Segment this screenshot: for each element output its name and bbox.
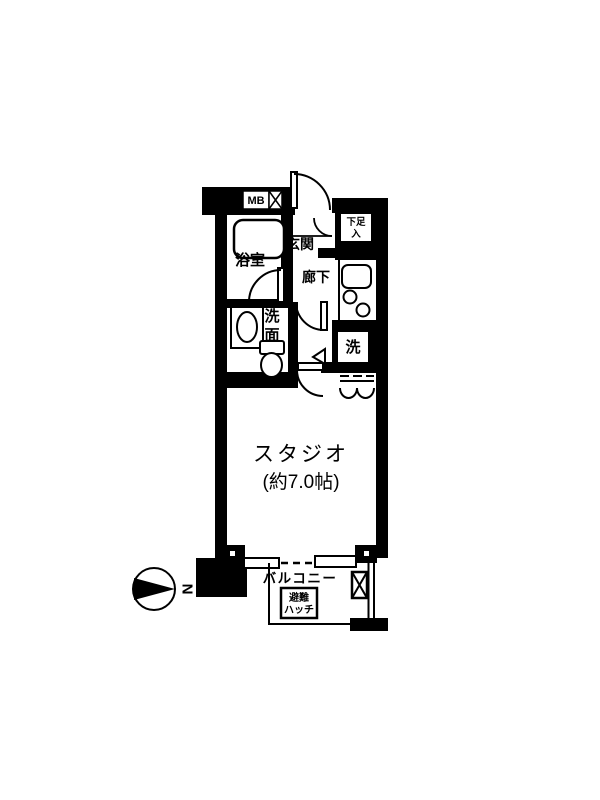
shoe-storage-label-1: 下足 <box>346 217 366 228</box>
balcony: バルコニー 避難 ハッチ <box>263 563 374 625</box>
escape-hatch-label-1: 避難 <box>288 591 309 604</box>
bath-label: 浴室 <box>235 251 265 269</box>
refrigerator-space <box>340 376 374 398</box>
wall-bottom-left-block <box>196 558 247 597</box>
pipe-space-label: P.S <box>346 248 365 260</box>
wall-laundry-bottom <box>321 362 376 373</box>
pillar-dot-left <box>230 551 235 556</box>
entrance-door-leaf <box>291 172 297 208</box>
studio-door-arc <box>297 370 323 396</box>
wall-laundry-left <box>332 332 338 362</box>
wall-balcony-bottom-right <box>350 618 388 631</box>
windows <box>244 556 356 568</box>
hallway-label: 廊下 <box>302 269 330 285</box>
wall-washroom-bottom <box>215 372 298 388</box>
washroom-door-arc <box>296 302 324 330</box>
shoe-storage: 下足 入 <box>341 214 371 241</box>
toilet-bowl-icon <box>261 353 282 377</box>
kitchenette <box>339 260 371 320</box>
washroom-label-2: 面 <box>264 327 279 344</box>
entrance-label: 玄関 <box>286 236 314 252</box>
fridge-door-arc-icon <box>357 388 374 398</box>
kitchen-sink-icon <box>342 265 371 288</box>
studio-door-leaf <box>298 363 323 370</box>
floor-plan-drawing: MB 下足 入 P.S 浴室 <box>0 0 600 800</box>
stove-burner-icon <box>344 291 357 304</box>
shoe-storage-door-arc <box>314 218 332 236</box>
fridge-door-arc-icon <box>340 388 357 398</box>
wall-laundry-right <box>368 332 376 362</box>
wall-kitchen-laundry-divider <box>332 320 376 332</box>
shoe-storage-label-2: 入 <box>350 229 361 240</box>
escape-hatch-label-2: ハッチ <box>284 604 314 616</box>
meter-box-label: MB <box>247 195 264 207</box>
floor-plan-page: MB 下足 入 P.S 浴室 <box>0 0 600 800</box>
wall-washroom-right <box>288 302 298 372</box>
bath-door-arc <box>249 270 281 302</box>
wash-basin-icon <box>237 312 257 342</box>
compass-arrow-icon <box>134 578 175 600</box>
entrance-door-arc <box>294 174 330 210</box>
compass-north-label: N <box>179 584 196 595</box>
washroom-label-1: 洗 <box>264 307 279 325</box>
meter-box: MB <box>243 191 282 209</box>
balcony-label: バルコニー <box>263 571 338 586</box>
window-left <box>244 558 279 568</box>
washroom-door-leaf <box>321 302 327 330</box>
laundry-label: 洗 <box>345 338 360 356</box>
bathroom: 浴室 <box>234 220 284 269</box>
stove-burner-icon <box>357 304 370 317</box>
wall-entrance-stub <box>318 248 336 258</box>
wall-right <box>376 210 388 558</box>
laundry-space: 洗 <box>338 332 368 362</box>
window-right <box>315 556 356 567</box>
studio-label: スタジオ <box>253 443 349 466</box>
compass: N <box>133 568 196 610</box>
laundry-door-triangle-icon <box>313 349 325 364</box>
pillar-dot-right <box>364 551 369 556</box>
bath-door-leaf <box>278 268 284 302</box>
studio-size-label: (約7.0帖) <box>262 471 339 493</box>
